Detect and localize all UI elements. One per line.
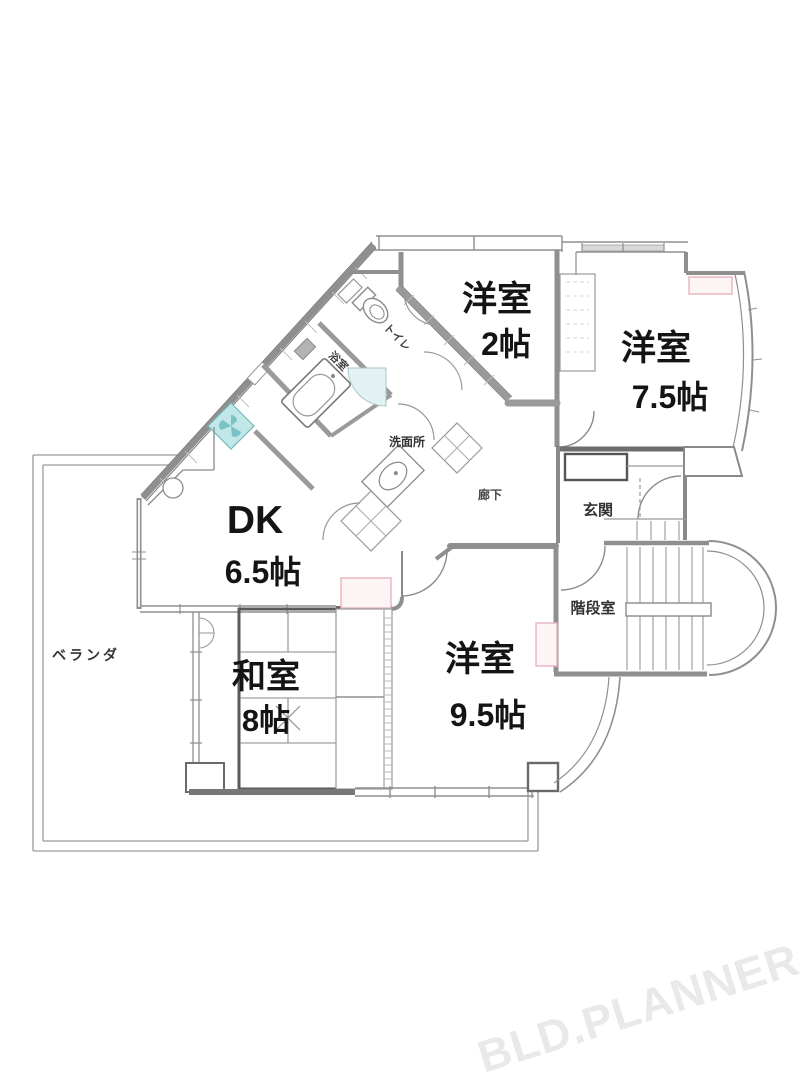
svg-text:DK: DK [227,499,283,542]
svg-text:ベランダ: ベランダ [52,647,120,663]
svg-text:洋室: 洋室 [445,639,515,679]
svg-text:玄関: 玄関 [583,501,613,519]
svg-text:洋室: 洋室 [462,279,532,319]
svg-text:2帖: 2帖 [481,326,531,362]
svg-text:和室: 和室 [232,657,300,696]
svg-text:洋室: 洋室 [621,328,691,368]
svg-text:6.5帖: 6.5帖 [225,554,302,590]
svg-text:洗面所: 洗面所 [389,434,425,449]
svg-text:9.5帖: 9.5帖 [450,697,527,733]
svg-text:廊下: 廊下 [478,487,502,502]
svg-text:8帖: 8帖 [242,703,290,738]
svg-text:7.5帖: 7.5帖 [632,379,709,415]
svg-text:階段室: 階段室 [570,599,615,617]
